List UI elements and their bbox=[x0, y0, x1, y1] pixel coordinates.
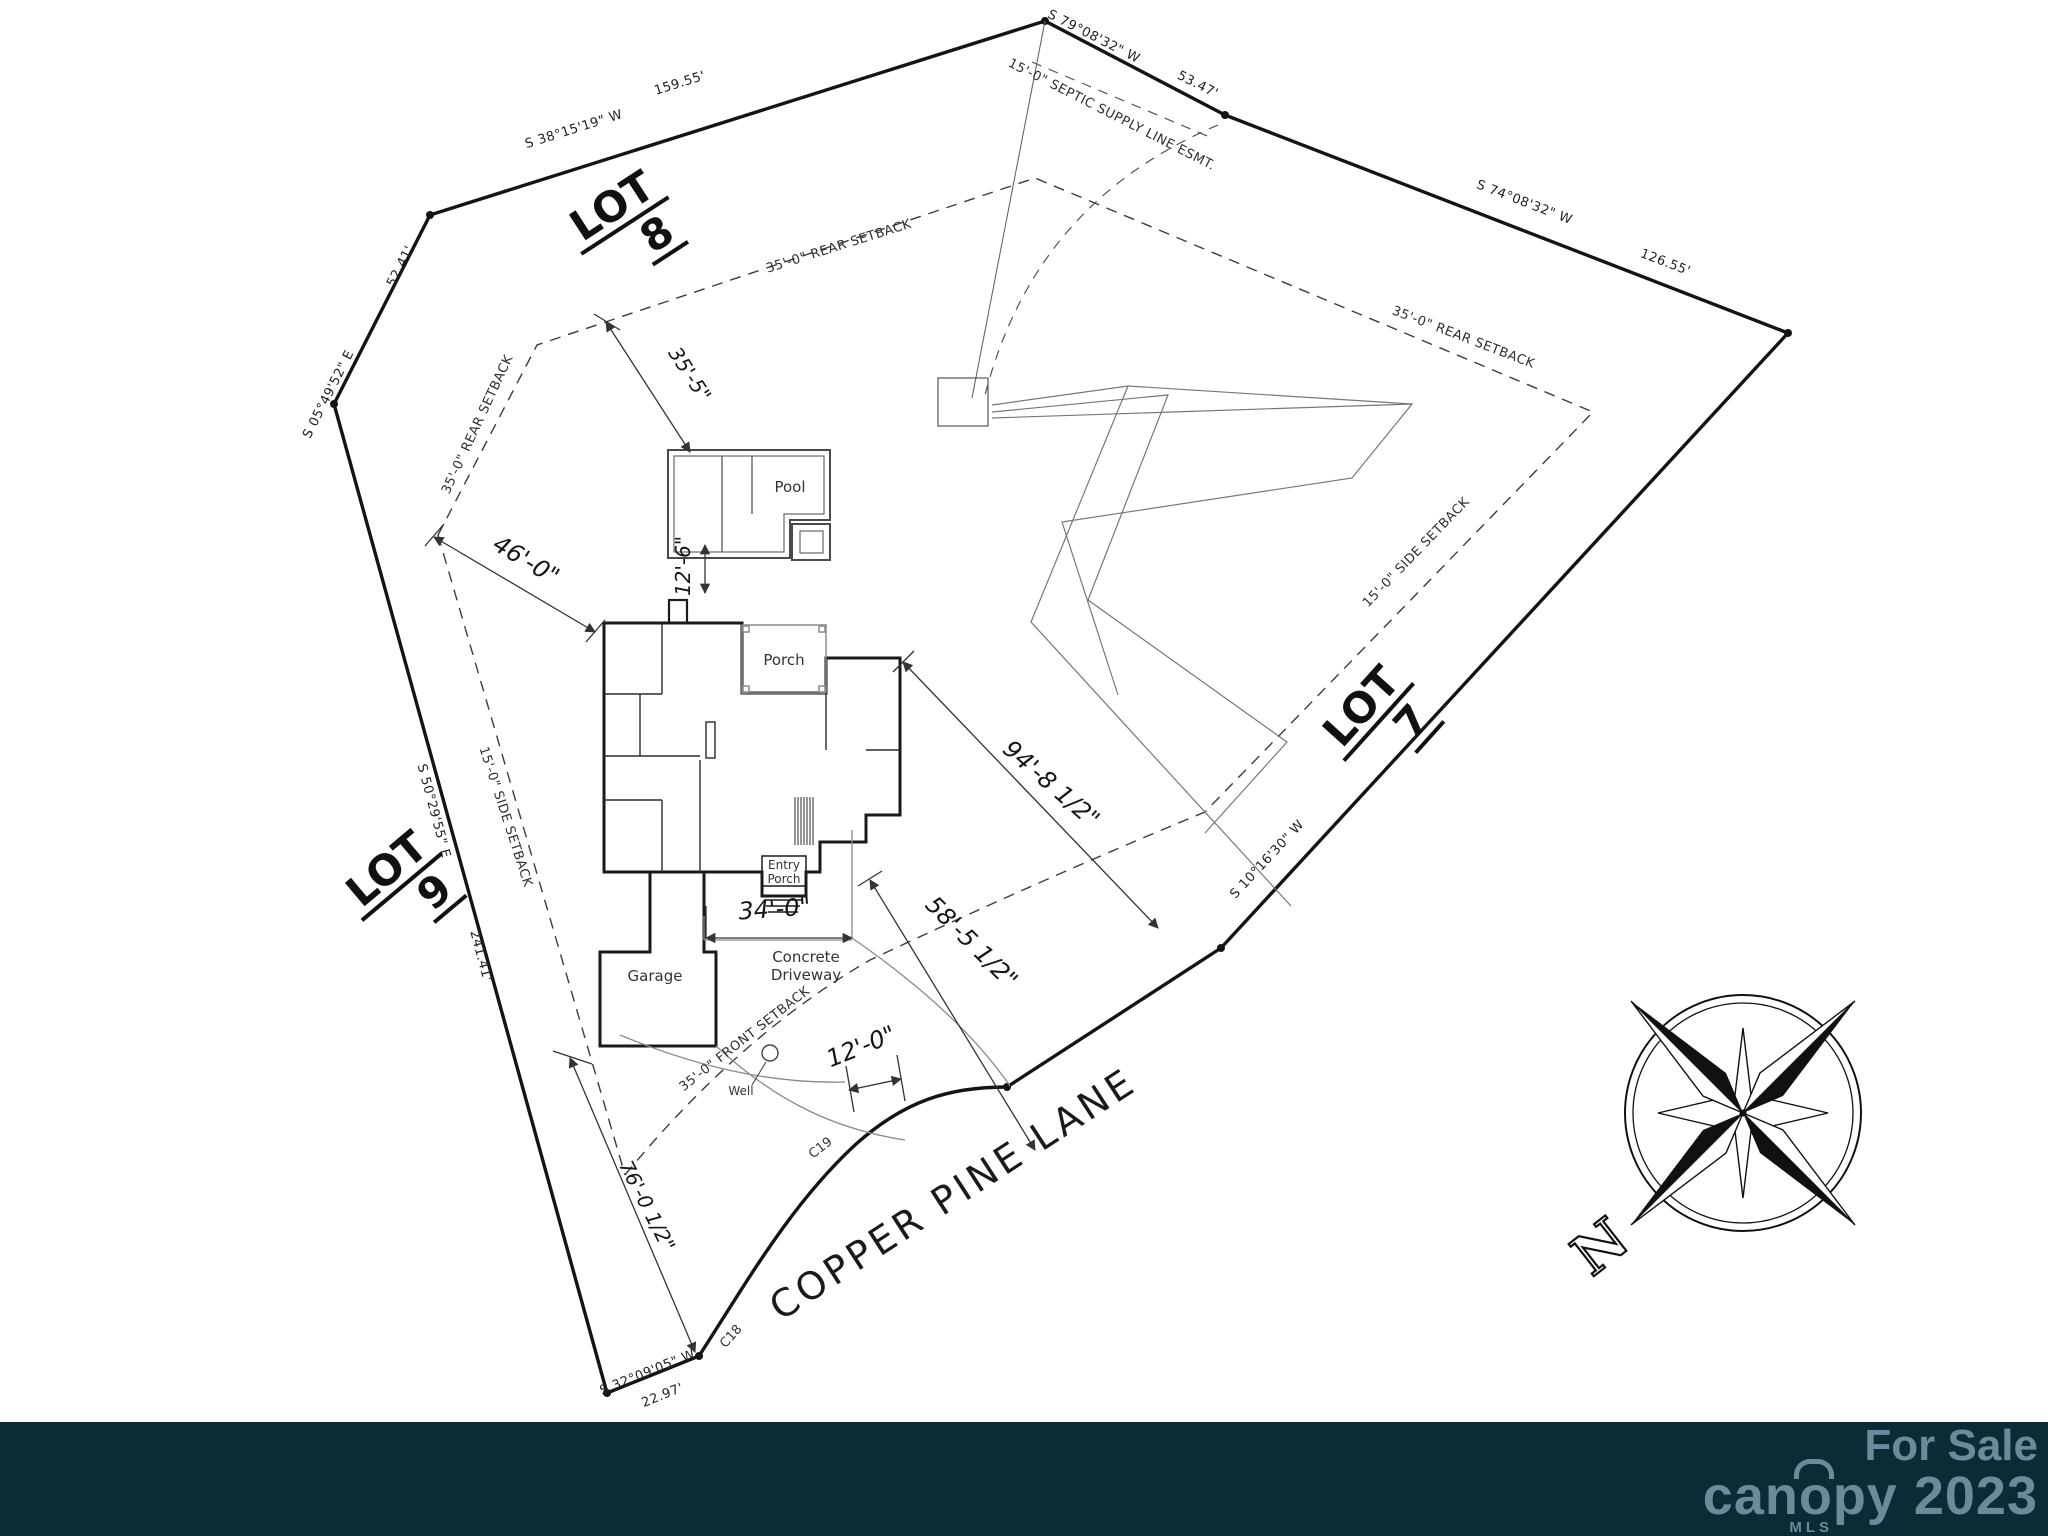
septic-easement-line bbox=[985, 125, 1218, 395]
pool-label: Pool bbox=[774, 478, 805, 496]
mls-watermark: For Sale canopy 2023 MLS bbox=[1703, 1424, 2038, 1536]
entry-porch-label-2: Porch bbox=[767, 872, 800, 886]
entry-porch-label-1: Entry bbox=[768, 858, 800, 872]
chimney bbox=[669, 600, 687, 623]
north-arrow-letter: N bbox=[1560, 1205, 1641, 1289]
bearing-right-side: S 10°16'30" W bbox=[1227, 817, 1307, 902]
bearing-top-peak: S 79°08'32" W bbox=[1045, 7, 1142, 66]
dimension-lines bbox=[425, 314, 1158, 1352]
canopy-logo-arch-icon bbox=[1794, 1459, 1834, 1479]
distance-top-right: 126.55' bbox=[1638, 246, 1692, 279]
distance-left-side: 241.41' bbox=[466, 929, 494, 984]
bearing-top-right: S 74°08'32" W bbox=[1474, 178, 1574, 228]
rear-setback-label-right: 35'-0" REAR SETBACK bbox=[1390, 304, 1537, 372]
dim-12-0-label: 12'-0" bbox=[822, 1020, 899, 1073]
lot-9-label: LOT 9 bbox=[331, 817, 473, 958]
lot-fit-page: S 38°15'19" W 159.55' S 79°08'32" W 53.4… bbox=[0, 0, 2048, 1536]
garage-label: Garage bbox=[628, 967, 683, 985]
side-setback-left-line bbox=[438, 535, 625, 1175]
driveway-label-2: Driveway bbox=[771, 966, 841, 984]
street-name: COPPER PINE LANE bbox=[762, 1059, 1145, 1329]
curve-label-c18: C18 bbox=[717, 1322, 745, 1351]
interior-walls bbox=[604, 623, 900, 872]
distance-top-peak: 53.47' bbox=[1175, 68, 1221, 101]
side-setback-label-left: 15'-0" SIDE SETBACK bbox=[476, 745, 536, 889]
front-setback-line bbox=[625, 812, 1205, 1175]
dim-34-0-label: 34'-0" bbox=[737, 893, 811, 926]
curve-label-c19: C19 bbox=[806, 1134, 835, 1162]
rear-setback-label-left: 35'-0" REAR SETBACK bbox=[439, 353, 517, 497]
driveway-label-1: Concrete bbox=[772, 948, 840, 966]
hot-tub bbox=[792, 524, 830, 560]
lot-7-label: LOT 7 bbox=[1308, 651, 1450, 793]
distance-upper-left: 52.41' bbox=[384, 243, 417, 289]
bearing-top-left: S 38°15'19" W bbox=[523, 107, 624, 152]
dim-35-5-label: 35'-5" bbox=[663, 342, 716, 405]
dim-76-0-line bbox=[570, 1058, 695, 1352]
watermark-year: 2023 bbox=[1914, 1466, 2038, 1526]
house-outline bbox=[604, 623, 900, 896]
dim-58-5-label: 58'-5 1/2" bbox=[920, 891, 1023, 994]
dim-94-8-line bbox=[903, 662, 1158, 928]
dim-12-6-label: 12'-6" bbox=[671, 536, 695, 596]
septic-drain-field bbox=[938, 378, 1412, 906]
garage-outline bbox=[600, 872, 716, 1046]
distance-bottom: 22.97' bbox=[640, 1381, 686, 1411]
for-sale-watermark: For Sale bbox=[1703, 1424, 2038, 1468]
canopy-watermark: canopy 2023 bbox=[1703, 1468, 2038, 1525]
front-setback-label: 35'-0" FRONT SETBACK bbox=[677, 984, 813, 1095]
site-plan-drawing: S 38°15'19" W 159.55' S 79°08'32" W 53.4… bbox=[0, 0, 2048, 1536]
porch-label: Porch bbox=[763, 651, 804, 669]
property-boundary bbox=[334, 21, 1788, 1393]
dim-12-0-line bbox=[849, 1079, 901, 1090]
dim-94-8-label: 94'-8 1/2" bbox=[997, 735, 1105, 834]
dim-35-5-line bbox=[606, 322, 690, 452]
stairs bbox=[795, 797, 813, 845]
well-symbol bbox=[762, 1045, 778, 1061]
rear-setback-label-top: 35'-0" REAR SETBACK bbox=[764, 217, 913, 277]
lot-8-label: LOT 8 bbox=[555, 157, 695, 295]
dim-46-0-label: 46'-0" bbox=[488, 530, 564, 591]
bearing-upper-left: S 05°49'52" E bbox=[300, 348, 357, 441]
distance-top-left: 159.55' bbox=[653, 69, 708, 99]
compass-rose-icon: N bbox=[1560, 995, 1861, 1289]
distribution-box bbox=[938, 378, 988, 426]
well-label: Well bbox=[728, 1084, 753, 1098]
